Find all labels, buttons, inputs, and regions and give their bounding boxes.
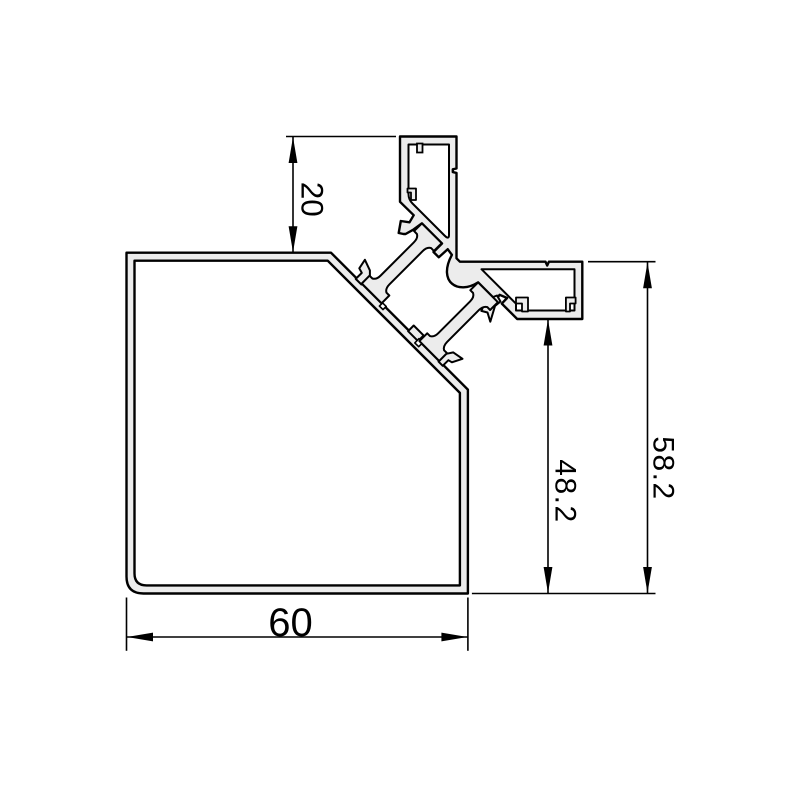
svg-text:48.2: 48.2	[549, 459, 582, 523]
svg-text:60: 60	[268, 601, 313, 645]
svg-text:58.2: 58.2	[647, 436, 680, 500]
svg-text:20: 20	[295, 182, 331, 217]
